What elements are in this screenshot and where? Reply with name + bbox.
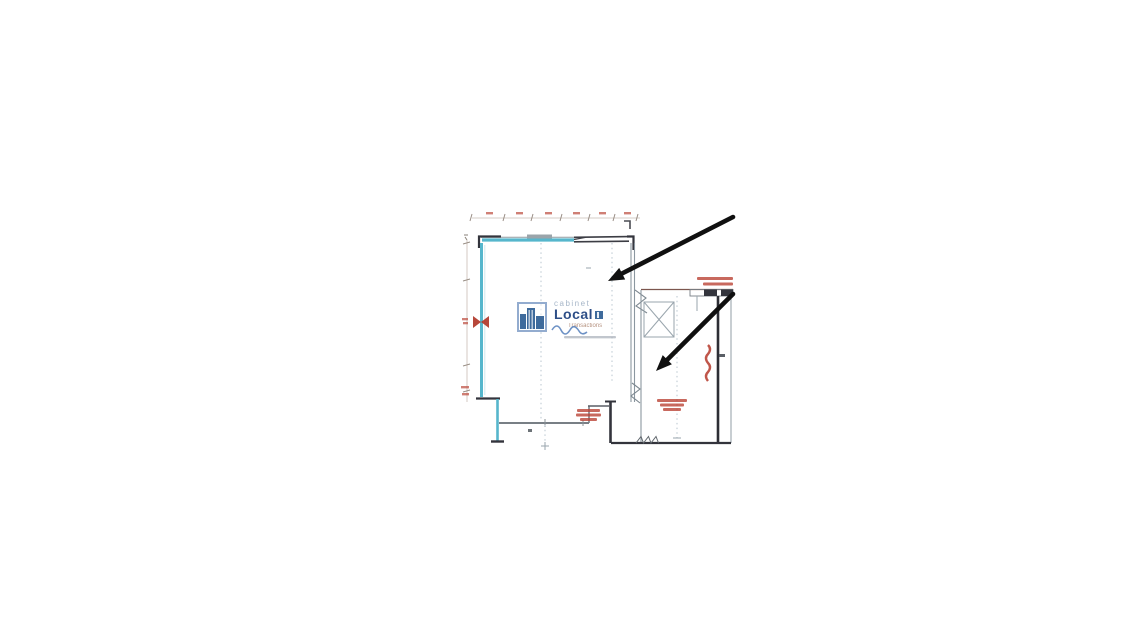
logo-square-mark bbox=[595, 311, 603, 319]
annotation-arrow-2 bbox=[656, 294, 733, 371]
top-wall-tab bbox=[527, 235, 552, 239]
top-dimension-ticks bbox=[470, 214, 638, 221]
red-vertical-scribble bbox=[706, 345, 710, 381]
agency-watermark: cabinet Local Transactions bbox=[514, 296, 634, 346]
annotation-arrow-1 bbox=[608, 217, 733, 281]
scan-speck bbox=[719, 354, 725, 357]
scan-mark bbox=[624, 221, 630, 229]
top-dimension-figures bbox=[486, 212, 631, 214]
x-braced-opening bbox=[644, 302, 674, 337]
signature-scribble bbox=[550, 322, 630, 344]
wall-squiggle bbox=[631, 383, 640, 403]
buildings-logo-icon bbox=[517, 302, 547, 332]
watermark-line-local: Local bbox=[554, 308, 644, 321]
scan-glyph bbox=[464, 235, 468, 240]
scan-speck bbox=[528, 429, 532, 432]
lintel-block bbox=[704, 290, 717, 297]
scanned-plan-page: cabinet Local Transactions bbox=[0, 0, 1130, 636]
left-dimension-line bbox=[461, 235, 470, 402]
